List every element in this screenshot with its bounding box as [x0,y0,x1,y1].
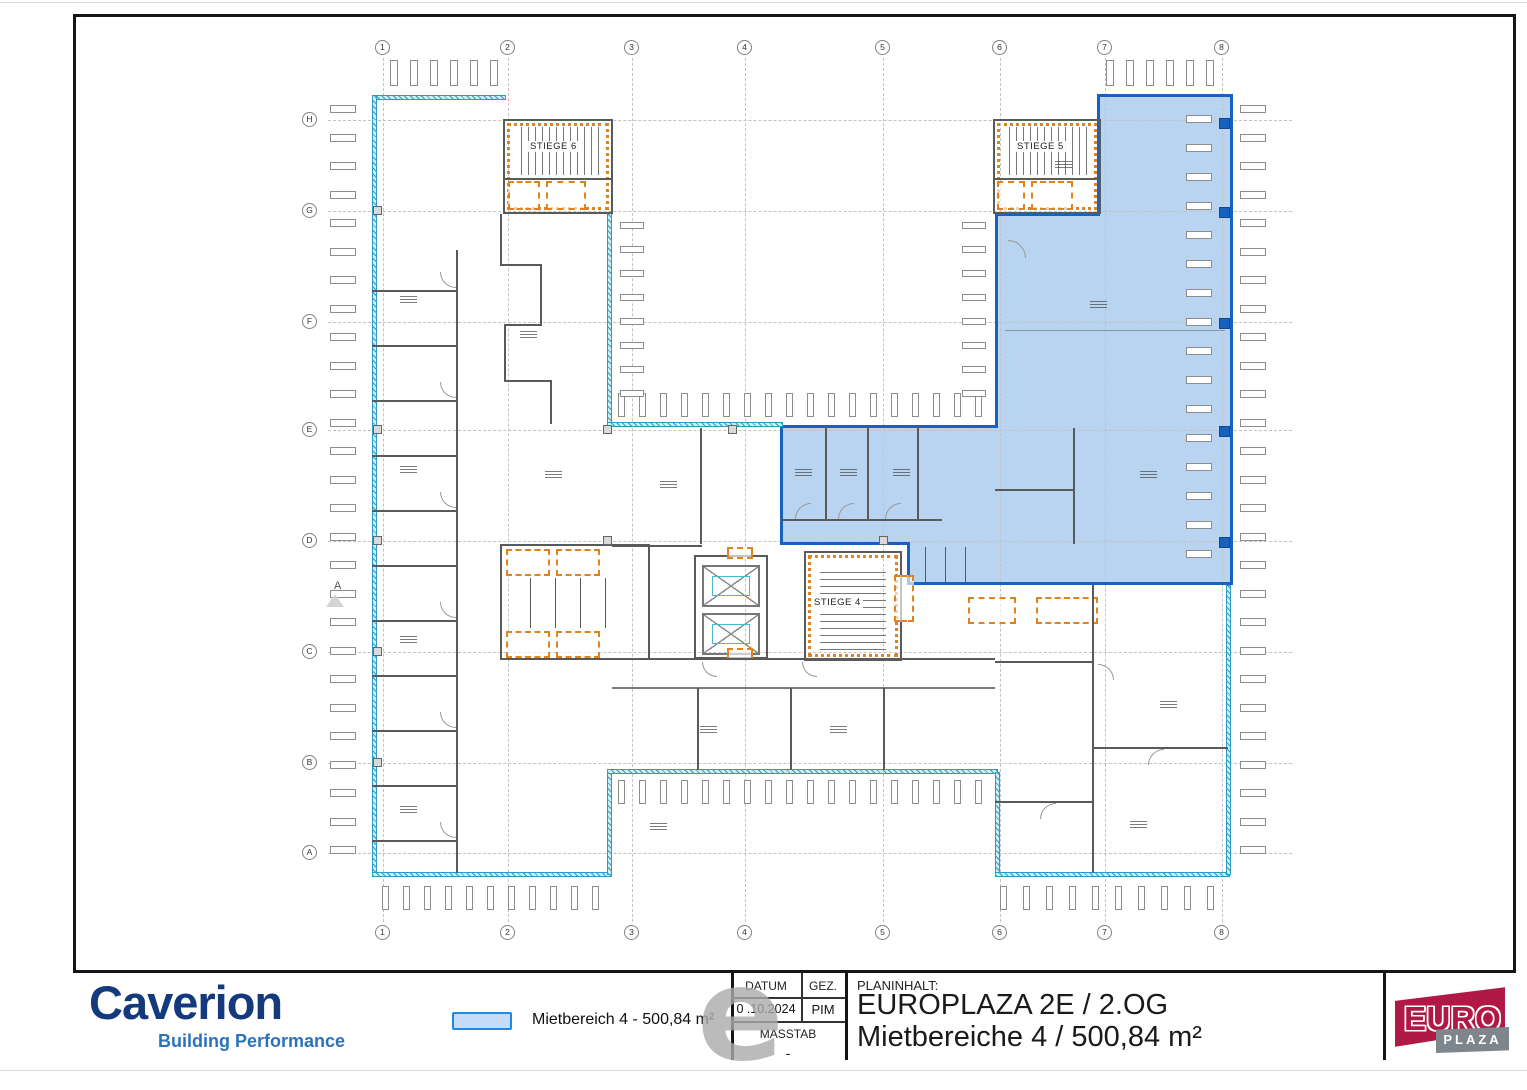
dimension-tag [1186,550,1212,558]
grid-layer: 1122334455667788HGFEDCBA [0,0,1527,970]
room-text [545,470,562,478]
wall-segment [804,551,806,661]
room-text [520,330,537,338]
dimension-tag [330,504,356,512]
grid-column-bubble: 8 [1214,925,1229,940]
stiege-6-label: STIEGE 6 [528,141,579,152]
wall-segment [995,661,1094,663]
dimension-tag [1186,289,1212,297]
dimension-tag [330,732,356,740]
dimension-tag [1240,789,1266,797]
dimension-tag [1146,60,1154,86]
dimension-tag [430,60,438,86]
title-block-divider [1383,973,1386,1060]
dimension-tag [1000,886,1007,910]
grid-line-vertical [1105,58,1106,922]
column-marker [603,425,612,434]
grid-row-bubble: G [302,203,317,218]
dimension-tag [403,886,410,910]
wall-segment [995,801,1094,803]
wall-segment [456,250,458,873]
wall-segment [1092,585,1094,873]
dimension-tag [330,162,356,170]
dimension-tag [330,305,356,313]
dimension-tag [786,780,793,804]
column-marker [1219,207,1230,218]
column-marker [1219,318,1230,329]
dimension-tag [660,780,667,804]
section-marker-icon [326,594,344,607]
dimension-tag [1240,105,1266,113]
dimension-tag [330,362,356,370]
room-text [400,295,417,303]
room-text [1140,470,1157,478]
dimension-tag [1023,886,1030,910]
grid-row-bubble: E [302,422,317,437]
wall-segment [372,785,456,787]
wall-segment [504,380,552,382]
grid-row-bubble: D [302,533,317,548]
shaft-box [506,549,550,576]
page-title-line1: EUROPLAZA 2E / 2.OG [857,989,1168,1022]
room-text [660,480,677,488]
dimension-tag [390,60,398,86]
title-block-divider [845,973,848,1060]
grid-line-horizontal [328,211,1292,212]
table-line [801,973,803,1021]
dimension-tag [1240,675,1266,683]
wall-segment [1073,428,1075,544]
grid-line-horizontal [328,430,1292,431]
highlight-border [780,542,910,545]
dimension-tag [1240,561,1266,569]
dimension-tag [550,886,557,910]
dimension-tag [1186,405,1212,413]
elevator-car [712,624,750,644]
wall-segment [500,214,502,266]
dimension-tag [1240,590,1266,598]
dimension-tag [620,246,644,253]
dimension-tag [450,60,458,86]
dimension-tag [330,447,356,455]
room-text [830,725,847,733]
room-text [1160,700,1177,708]
grid-column-bubble: 2 [500,925,515,940]
dimension-tag [765,780,772,804]
highlight-border [1097,94,1233,97]
dimension-tag [723,393,730,417]
exterior-wall [607,772,612,875]
wall-segment [372,345,456,347]
column-marker [373,647,382,656]
dimension-tag [975,780,982,804]
exterior-wall [607,769,998,774]
shaft-box [997,181,1025,210]
dimension-tag [702,780,709,804]
dimension-tag [786,393,793,417]
dimension-tag [891,780,898,804]
dimension-tag [1115,886,1122,910]
wall-segment [500,264,542,266]
grid-column-bubble: 3 [624,40,639,55]
wall-segment [504,324,506,382]
dimension-tag [912,393,919,417]
room-text [893,468,910,476]
dimension-tag [330,533,356,541]
room-text [1055,160,1072,168]
dimension-tag [330,134,356,142]
dimension-tag [1106,60,1114,86]
caverion-tagline: Building Performance [158,1031,345,1052]
elevator-car [712,576,750,596]
dimension-tag [1240,248,1266,256]
wall-segment [372,730,456,732]
room-text [840,468,857,476]
grid-row-bubble: A [302,845,317,860]
dimension-tag [1206,60,1214,86]
column-marker [1219,426,1230,437]
dimension-tag [330,191,356,199]
dimension-tag [1240,533,1266,541]
legend-swatch [452,1012,512,1030]
dimension-tag [1126,60,1134,86]
wall-segment [503,212,613,214]
room-text [1130,820,1147,828]
highlight-border [1230,94,1233,585]
wall-segment [580,578,581,628]
shaft-box [556,549,600,576]
shaft-box [727,547,753,559]
exterior-wall [995,772,1000,875]
wall-segment [965,547,966,583]
grid-row-bubble: C [302,644,317,659]
dimension-tag [330,789,356,797]
dimension-tag [681,780,688,804]
dimension-tag [620,222,644,229]
gez-value: PIM [801,1002,845,1017]
grid-column-bubble: 8 [1214,40,1229,55]
grid-column-bubble: 1 [375,40,390,55]
dimension-tag [620,366,644,373]
dimension-tag [1069,886,1076,910]
exterior-wall [1226,585,1231,875]
column-marker [1219,537,1230,548]
dimension-tag [330,818,356,826]
room-text [1090,300,1107,308]
dimension-tag [1186,144,1212,152]
dimension-tag [744,780,751,804]
dimension-tag [1240,504,1266,512]
wall-segment [780,519,942,521]
wall-segment [503,119,613,121]
column-marker [373,536,382,545]
dimension-tag [1186,115,1212,123]
wall-segment [503,119,505,214]
dimension-tag [1186,318,1212,326]
dimension-tag [891,393,898,417]
dimension-tag [828,780,835,804]
wall-segment [372,840,456,842]
dimension-tag [962,390,986,397]
dimension-tag [490,60,498,86]
exterior-wall [372,872,612,877]
dimension-tag [1166,60,1174,86]
dimension-tag [1186,173,1212,181]
dimension-tag [1240,732,1266,740]
dimension-tag [1186,376,1212,384]
dimension-tag [962,222,986,229]
dimension-tag [1046,886,1053,910]
dimension-tag [849,780,856,804]
grid-line-horizontal [328,853,1292,854]
shaft-box [546,181,586,210]
wall-segment [993,119,1101,121]
dimension-tag [424,886,431,910]
wall-segment [804,551,902,553]
exterior-wall [607,422,783,427]
grid-row-bubble: B [302,755,317,770]
dimension-tag [1240,618,1266,626]
wall-segment [694,555,696,659]
room-text [400,465,417,473]
wall-segment [945,547,946,583]
dimension-tag [382,886,389,910]
page-title-line2: Mietbereiche 4 / 500,84 m² [857,1021,1202,1054]
room-text [400,805,417,813]
wall-segment [648,544,650,660]
shaft-box [968,597,1016,624]
shaft-box [894,575,914,622]
dimension-tag [620,318,644,325]
grid-line-vertical [383,58,384,922]
dimension-tag [962,294,986,301]
europlaza-logo-plaza: PLAZA [1436,1027,1509,1053]
dimension-tag [1186,521,1212,529]
shaft-box [506,631,550,658]
wall-segment [530,578,531,628]
room-text [700,725,717,733]
dimension-tag [330,276,356,284]
dimension-tag [870,780,877,804]
grid-line-vertical [1222,58,1223,922]
dimension-tag [1240,476,1266,484]
wall-segment [867,428,869,521]
dimension-tag [1240,162,1266,170]
dimension-tag [1240,447,1266,455]
dimension-tag [1186,434,1212,442]
wall-segment [790,688,792,770]
wall-segment [504,324,542,326]
dimension-tag [702,393,709,417]
legend-label: Mietbereich 4 - 500,84 m² [532,1011,714,1029]
grid-column-bubble: 1 [375,925,390,940]
dimension-tag [849,393,856,417]
dimension-tag [1186,463,1212,471]
wall-segment [917,428,919,521]
wall-segment [1005,330,1225,331]
dimension-tag [1186,492,1212,500]
gez-label: GEZ. [801,979,845,993]
dimension-tag [933,780,940,804]
wall-segment [766,555,768,659]
wall-segment [612,658,995,660]
dimension-tag [330,761,356,769]
dimension-tag [933,393,940,417]
grid-column-bubble: 5 [875,925,890,940]
wall-segment [993,119,995,214]
wall-segment [540,264,542,326]
wall-segment [372,400,456,402]
dimension-tag [410,60,418,86]
grid-column-bubble: 2 [500,40,515,55]
dimension-tag [330,419,356,427]
dimension-tag [954,780,961,804]
room-text [795,468,812,476]
dimension-tag [962,270,986,277]
dimension-tag [1092,886,1099,910]
dimension-tag [1240,390,1266,398]
highlight-border [780,425,998,428]
dimension-tag [620,294,644,301]
dimension-tag [1240,219,1266,227]
dimension-tag [1240,276,1266,284]
wall-segment [372,510,456,512]
dimension-tag [1186,202,1212,210]
wall-segment [550,380,552,424]
dimension-tag [508,886,515,910]
dimension-tag [618,780,625,804]
exterior-wall [372,95,506,100]
grid-line-horizontal [328,120,1292,121]
wall-segment [825,428,827,521]
dimension-tag [330,846,356,854]
grid-line-horizontal [328,322,1292,323]
dimension-tag [330,333,356,341]
exterior-wall [607,213,612,425]
dimension-tag [962,246,986,253]
grid-line-vertical [632,58,633,922]
wall-segment [995,489,1075,491]
dimension-tag [592,886,599,910]
section-marker-label: A [334,580,341,592]
dimension-tag [330,390,356,398]
room-text [650,822,667,830]
grid-column-bubble: 7 [1097,40,1112,55]
caverion-logo: Caverion [89,975,282,1030]
dimension-tag [912,780,919,804]
wall-segment [611,119,613,214]
shaft-box [508,181,540,210]
wall-segment [883,688,885,770]
wall-segment [500,544,502,660]
dimension-tag [954,393,961,417]
dimension-tag [681,393,688,417]
highlight-border [907,582,1233,585]
wall-segment [1099,119,1101,214]
dimension-tag [620,390,644,397]
column-marker [879,536,888,545]
dimension-tag [639,780,646,804]
dimension-tag [1240,647,1266,655]
shaft-box [1031,181,1073,210]
wall-segment [372,620,456,622]
dimension-tag [330,618,356,626]
wall-segment [697,688,699,770]
dimension-tag [330,248,356,256]
dimension-tag [529,886,536,910]
dimension-tag [1161,886,1168,910]
stiege-5-label: STIEGE 5 [1015,141,1066,152]
grid-column-bubble: 6 [992,925,1007,940]
dimension-tag [620,270,644,277]
shaft-box [1036,597,1098,624]
grid-line-vertical [883,58,884,922]
dimension-tag [660,393,667,417]
dimension-tag [744,393,751,417]
dimension-tag [962,342,986,349]
wall-segment [372,290,456,292]
dimension-tag [445,886,452,910]
highlight-border [995,214,998,428]
dimension-tag [1240,191,1266,199]
dimension-tag [723,780,730,804]
grid-column-bubble: 6 [992,40,1007,55]
dimension-tag [470,60,478,86]
floor-plan: 1122334455667788HGFEDCBA STIEGE 6 STIEGE… [0,0,1527,970]
dimension-tag [1240,761,1266,769]
wall-segment [505,178,611,180]
stair-treads [820,566,886,650]
dimension-tag [1240,818,1266,826]
dimension-tag [962,318,986,325]
dimension-tag [330,704,356,712]
dimension-tag [1184,886,1191,910]
dimension-tag [330,105,356,113]
dimension-tag [330,647,356,655]
highlight-border [780,426,783,545]
dimension-tag [571,886,578,910]
column-marker [728,425,737,434]
grid-column-bubble: 3 [624,925,639,940]
dimension-tag [870,393,877,417]
exterior-wall [995,872,1230,877]
dimension-tag [1240,134,1266,142]
dimension-tag [1240,704,1266,712]
dimension-tag [807,780,814,804]
dimension-tag [1240,419,1266,427]
grid-row-bubble: H [302,112,317,127]
dimension-tag [330,219,356,227]
grid-column-bubble: 7 [1097,925,1112,940]
dimension-tag [487,886,494,910]
dimension-tag [330,675,356,683]
dimension-tag [1186,231,1212,239]
column-marker [1219,118,1230,129]
grid-column-bubble: 5 [875,40,890,55]
grid-column-bubble: 4 [737,925,752,940]
dimension-tag [962,366,986,373]
wall-segment [372,565,456,567]
dimension-tag [620,342,644,349]
dimension-tag [1240,846,1266,854]
wall-segment [612,687,995,689]
wall-segment [372,455,456,457]
column-marker [373,425,382,434]
room-text [400,635,417,643]
shaft-box [556,631,600,658]
wall-segment [605,578,606,628]
wall-segment [993,212,1101,214]
